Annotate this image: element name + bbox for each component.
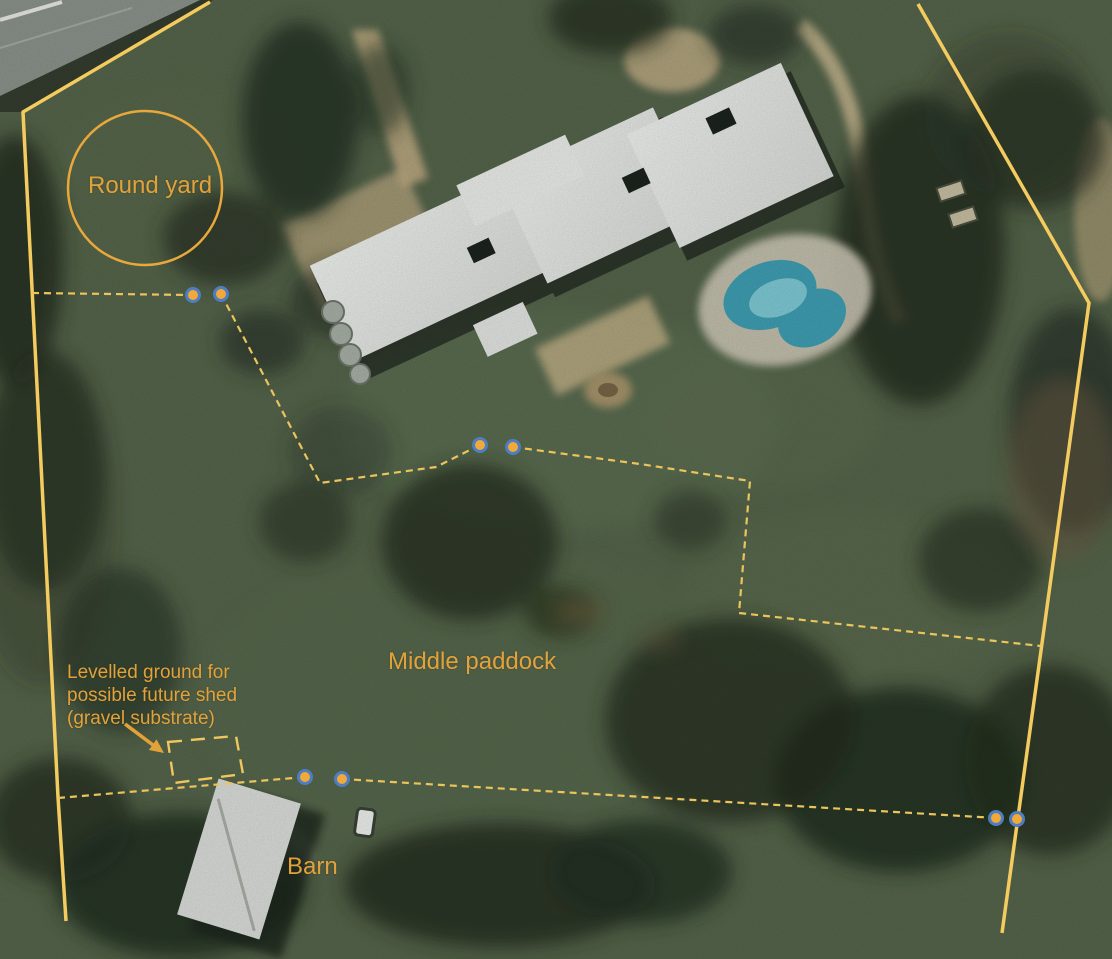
gate-marker-dot xyxy=(299,771,312,784)
shed-note-line-1: Levelled ground for xyxy=(67,661,237,684)
barn-label: Barn xyxy=(287,853,338,881)
satellite-photo xyxy=(0,0,1112,959)
shed-note-line-2: possible future shed xyxy=(67,684,237,707)
shed-note-line-3: (gravel substrate) xyxy=(67,707,237,730)
gate-marker-dot xyxy=(187,289,200,302)
gate-marker-dot xyxy=(215,288,228,301)
gate-marker-dot xyxy=(990,812,1003,825)
shed-note: Levelled ground for possible future shed… xyxy=(67,661,237,730)
round-yard-label: Round yard xyxy=(88,172,212,200)
middle-paddock-label: Middle paddock xyxy=(388,648,556,676)
gate-marker-dot xyxy=(474,439,487,452)
gate-marker-dot xyxy=(336,773,349,786)
gate-marker-dot xyxy=(507,441,520,454)
gate-marker-dot xyxy=(1011,813,1024,826)
aerial-property-map: Round yard Middle paddock Barn Levelled … xyxy=(0,0,1112,959)
